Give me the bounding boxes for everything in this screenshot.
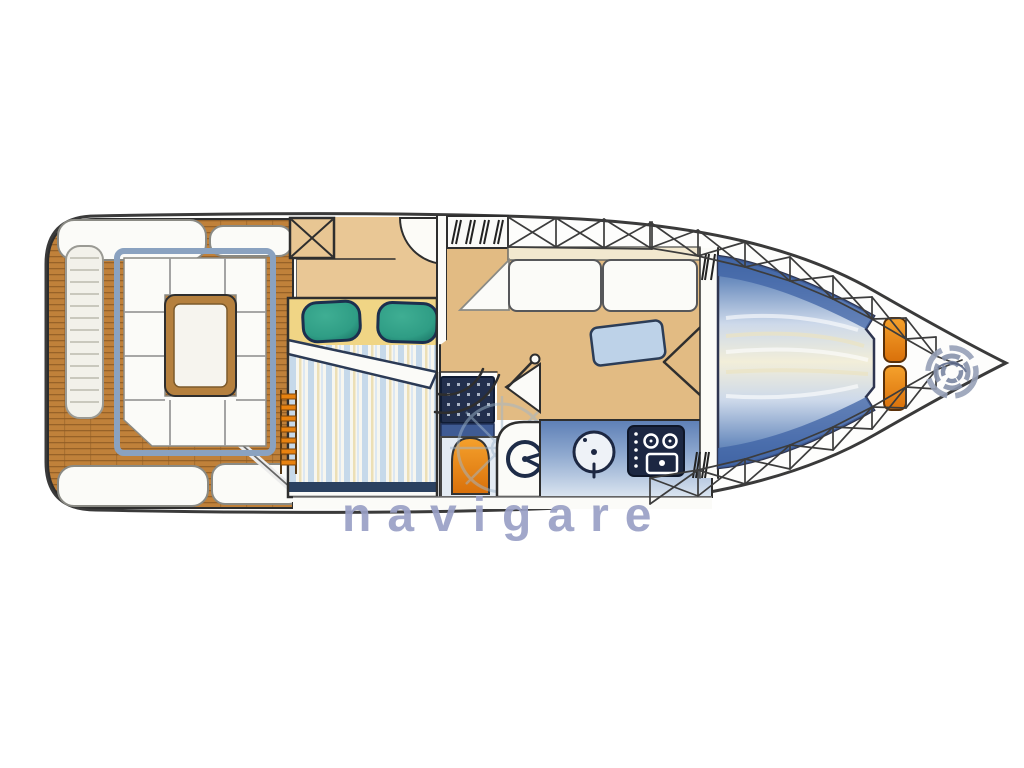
mid-cabin: [281, 217, 447, 502]
watermark-text: navigare: [342, 489, 667, 542]
deck-plan-svg: navigare: [0, 0, 1024, 768]
cockpit-table: [165, 295, 236, 396]
pillow-right: [377, 302, 437, 343]
pillow-left: [302, 301, 361, 343]
cockpit-seating: [117, 251, 273, 453]
aft-step: [58, 466, 208, 506]
boat-deck-plan: navigare: [0, 0, 1024, 768]
door-knob: [531, 355, 540, 364]
galley: [540, 420, 712, 497]
companionway-steps: [447, 216, 508, 248]
stove-burners: [628, 426, 684, 476]
salon-table: [590, 320, 666, 366]
transom-ridged-panel: [66, 246, 103, 418]
deck-hatch: [290, 218, 334, 258]
